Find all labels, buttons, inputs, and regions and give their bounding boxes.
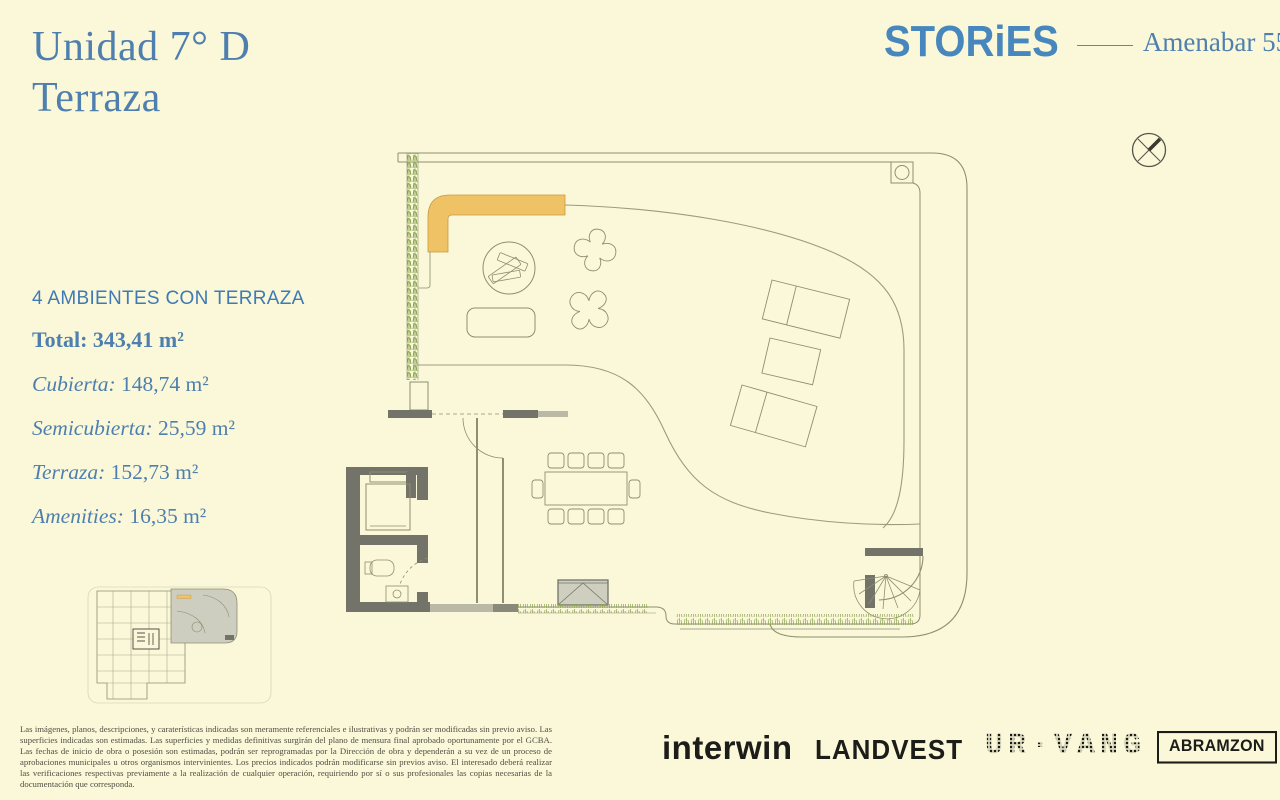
awning	[558, 580, 608, 605]
spec-total-value: 343,41 m²	[93, 327, 184, 352]
spec-cubierta: Cubierta: 148,74 m²	[32, 372, 305, 397]
dining-table	[532, 453, 640, 524]
key-plan-thumbnail	[85, 583, 275, 708]
brand-divider-line	[1077, 45, 1133, 46]
abramzon-logo: ABRAMZON	[1157, 731, 1277, 764]
brochure-page: Unidad 7° D Terraza STORiES Amenabar 555…	[0, 0, 1280, 800]
terrace-outer-shell	[398, 153, 967, 637]
page-title: Unidad 7° D Terraza	[32, 22, 250, 124]
interior-walls	[388, 410, 568, 612]
stories-logo: STORiES	[884, 18, 1059, 67]
specs-headline: 4 AMBIENTES CON TERRAZA	[32, 288, 305, 310]
planter-stars	[558, 226, 620, 341]
legal-disclaimer: Las imágenes, planos, descripciones, y c…	[20, 724, 552, 789]
lounge-circle	[483, 242, 535, 294]
lawn-strips	[518, 604, 914, 625]
spec-terraza: Terraza: 152,73 m²	[32, 460, 305, 485]
unit-title-line2: Terraza	[32, 73, 250, 124]
corner-column	[891, 162, 913, 183]
highlighted-unit	[171, 589, 237, 643]
hedge	[407, 153, 428, 410]
elevator	[346, 467, 430, 612]
north-compass-icon	[1129, 130, 1169, 170]
spec-total: Total: 343,41 m²	[32, 327, 305, 353]
landvest-logo: LANDVEST	[815, 734, 963, 767]
project-name: Amenabar 555	[1143, 27, 1280, 58]
bench	[467, 308, 535, 337]
spec-semicubierta: Semicubierta: 25,59 m²	[32, 416, 305, 441]
interwin-logo: interwin	[662, 729, 793, 767]
unit-specs: 4 AMBIENTES CON TERRAZA Total: 343,41 m²…	[32, 288, 305, 548]
unit-title-line1: Unidad 7° D	[32, 22, 250, 73]
floor-plan	[340, 140, 980, 650]
terrace-paths	[413, 205, 920, 528]
spec-amenities: Amenities: 16,35 m²	[32, 504, 305, 529]
urvang-logo: UR·VANG	[985, 729, 1146, 763]
spec-total-label: Total:	[32, 327, 87, 352]
sun-loungers	[730, 280, 849, 447]
spiral-staircase	[854, 548, 923, 619]
brand-header: STORiES Amenabar 555	[884, 20, 1280, 65]
